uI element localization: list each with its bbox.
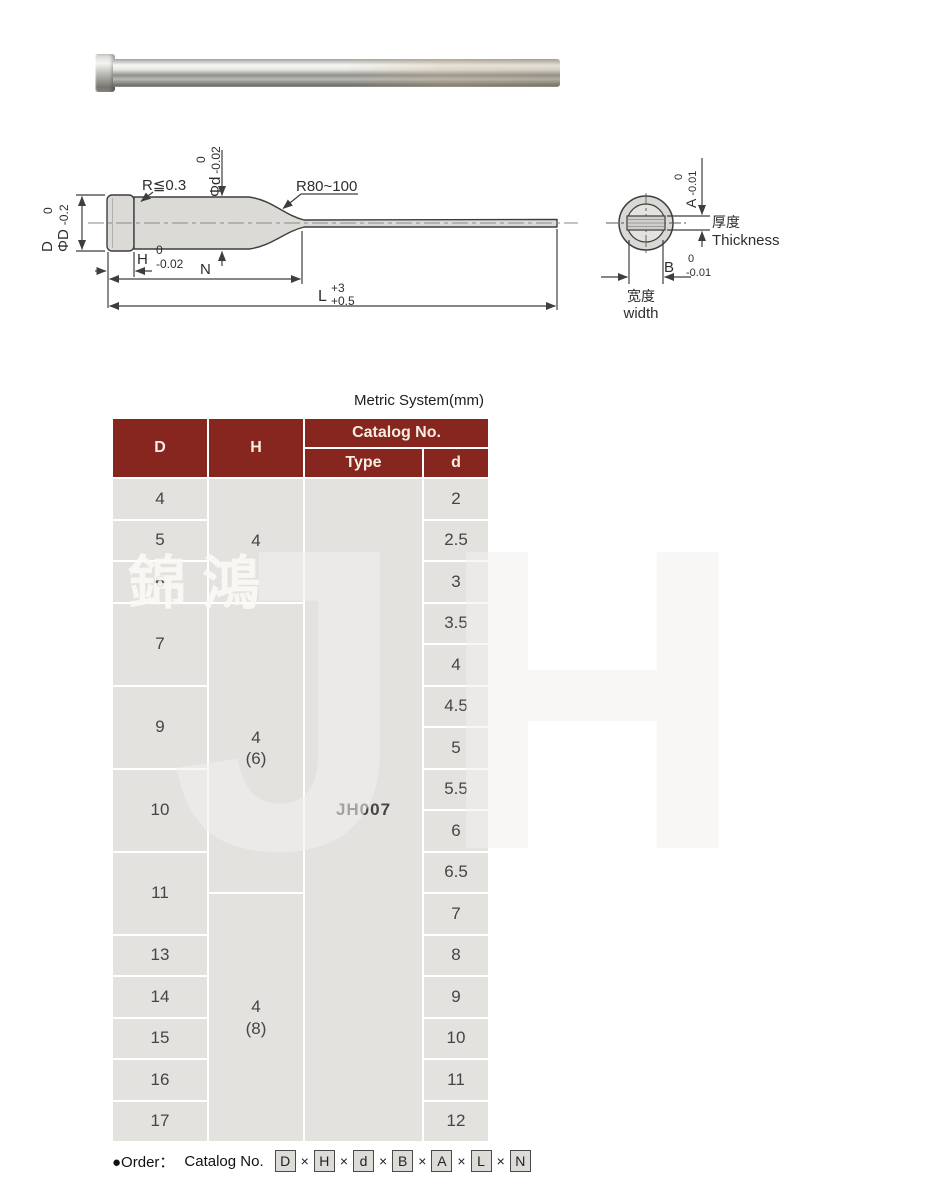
header-H: H — [208, 418, 304, 478]
order-letter-box-B: B — [392, 1150, 413, 1172]
dim-L-lo: +0.5 — [331, 294, 355, 308]
multiply-sign: × — [301, 1153, 309, 1169]
cell-d: 4 — [423, 644, 489, 686]
pin-shaft-photo — [113, 59, 560, 87]
thickness-label-en: Thickness — [712, 232, 780, 249]
cell-D: 17 — [112, 1101, 208, 1143]
cell-D: 11 — [112, 852, 208, 935]
svg-text:A-0.01: A-0.01 — [683, 171, 699, 208]
cell-d: 11 — [423, 1059, 489, 1101]
dim-d-lo: -0.02 — [209, 146, 223, 174]
width-label-cn: 宽度 — [627, 288, 655, 304]
dim-D-hi: 0 — [41, 207, 55, 214]
multiply-sign: × — [340, 1153, 348, 1169]
ejector-pin-photo — [95, 54, 560, 92]
dim-D-lo: -0.2 — [57, 204, 71, 225]
order-letter-box-D: D — [275, 1150, 296, 1172]
order-prefix: Catalog No. — [184, 1153, 263, 1170]
order-letter-box-A: A — [431, 1150, 452, 1172]
dim-label-H: H — [137, 251, 148, 268]
cell-d: 3.5 — [423, 603, 489, 645]
thickness-label-cn: 厚度 — [712, 214, 740, 230]
dim-A-hi: 0 — [673, 174, 685, 180]
multiply-sign: × — [497, 1153, 505, 1169]
header-D: D — [112, 418, 208, 478]
cell-H: 4 — [208, 478, 304, 603]
cell-d: 6.5 — [423, 852, 489, 894]
dim-H-lo: -0.02 — [156, 257, 184, 271]
svg-text:D0: D0 — [39, 207, 56, 252]
cell-d: 4.5 — [423, 686, 489, 728]
cell-D: 14 — [112, 976, 208, 1018]
table-row: 4 4 JH007 2 — [112, 478, 489, 520]
label-r-large: R80~100 — [296, 178, 357, 195]
header-small-d: d — [423, 448, 489, 478]
cell-d: 5 — [423, 727, 489, 769]
cell-d: 7 — [423, 893, 489, 935]
dim-H-hi: 0 — [156, 243, 163, 257]
cell-D: 16 — [112, 1059, 208, 1101]
technical-drawing: R≦0.3 R80~100 D0 ΦD-0.2 0 Φd-0.02 H 0 -0… — [0, 128, 931, 338]
dim-label-B: B — [664, 259, 674, 276]
spec-table-section: Metric System(mm) D H Catalog No. Type d… — [111, 392, 488, 1143]
dim-A-name: A — [683, 198, 699, 208]
label-r-small: R≦0.3 — [142, 177, 186, 194]
cell-D: 15 — [112, 1018, 208, 1060]
order-letter-box-N: N — [510, 1150, 531, 1172]
dim-d-hi: 0 — [194, 156, 208, 163]
cell-type: JH007 — [304, 478, 423, 1142]
cell-d: 5.5 — [423, 769, 489, 811]
order-label: ●Order： — [112, 1151, 174, 1172]
dim-A-lo: -0.01 — [687, 171, 699, 196]
svg-text:0: 0 — [673, 174, 685, 180]
dim-L-hi: +3 — [331, 281, 345, 295]
cell-D: 9 — [112, 686, 208, 769]
order-letter-box-L: L — [471, 1150, 492, 1172]
cell-d: 2 — [423, 478, 489, 520]
cell-D: 13 — [112, 935, 208, 977]
svg-text:ΦD-0.2: ΦD-0.2 — [55, 204, 72, 252]
dim-D-phi: ΦD — [55, 229, 72, 252]
cell-d: 8 — [423, 935, 489, 977]
order-line: ●Order： Catalog No. D × H × d × B × A × … — [112, 1150, 534, 1172]
catalog-page: R≦0.3 R80~100 D0 ΦD-0.2 0 Φd-0.02 H 0 -0… — [0, 0, 931, 1186]
header-catalog-no: Catalog No. — [304, 418, 489, 448]
cell-D: 6 — [112, 561, 208, 603]
multiply-sign: × — [457, 1153, 465, 1169]
dim-D-name: D — [39, 241, 56, 252]
order-letter-box-d: d — [353, 1150, 374, 1172]
dim-B-hi: 0 — [688, 253, 694, 265]
dim-d-phi: Φd — [207, 177, 224, 197]
cell-D: 5 — [112, 520, 208, 562]
cell-d: 2.5 — [423, 520, 489, 562]
cell-H: 4 (8) — [208, 893, 304, 1142]
multiply-sign: × — [379, 1153, 387, 1169]
table-title: Metric System(mm) — [111, 392, 488, 414]
dim-label-D: D0 ΦD-0.2 — [39, 204, 72, 252]
dim-label-L: L — [318, 288, 327, 305]
svg-text:Φd-0.02: Φd-0.02 — [207, 146, 224, 197]
header-type: Type — [304, 448, 423, 478]
cell-D: 4 — [112, 478, 208, 520]
dim-label-A: 0 A-0.01 — [673, 171, 699, 208]
cell-d: 6 — [423, 810, 489, 852]
cell-D: 10 — [112, 769, 208, 852]
dim-label-N: N — [200, 261, 211, 278]
svg-text:0: 0 — [194, 156, 208, 163]
cell-D: 7 — [112, 603, 208, 686]
multiply-sign: × — [418, 1153, 426, 1169]
pin-head-photo — [95, 54, 115, 92]
cell-d: 10 — [423, 1018, 489, 1060]
cell-d: 3 — [423, 561, 489, 603]
dim-B-lo: -0.01 — [686, 267, 711, 279]
cell-H: 4 (6) — [208, 603, 304, 894]
dim-label-d: 0 Φd-0.02 — [194, 146, 224, 197]
spec-table: D H Catalog No. Type d 4 4 JH007 2 5 — [111, 417, 490, 1143]
table-row: 7 4 (6) 3.5 — [112, 603, 489, 645]
cell-d: 12 — [423, 1101, 489, 1143]
order-letter-box-H: H — [314, 1150, 335, 1172]
cell-d: 9 — [423, 976, 489, 1018]
width-label-en: width — [622, 305, 658, 322]
